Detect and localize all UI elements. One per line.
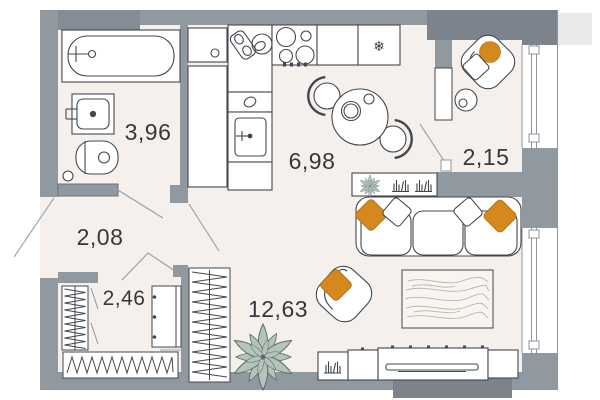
wall-bathroom-bottom [58, 184, 118, 196]
wall-closet-top [58, 272, 98, 283]
wall-balcony-partition [437, 172, 522, 197]
dining-table-icon [332, 89, 388, 145]
sofa-icon [354, 197, 521, 256]
room-label-kitchen: 6,98 [289, 148, 336, 174]
floor-drain-icon [63, 171, 73, 181]
side-table-icon [455, 89, 477, 111]
rug-icon [402, 270, 493, 328]
floor-plan-canvas: ❄ [0, 0, 600, 400]
balcony-door-pivot [441, 160, 451, 171]
wall-top-right-dark [427, 10, 522, 40]
bathtub-icon [62, 30, 180, 82]
wall-left-upper [40, 10, 58, 197]
dresser-icon [152, 286, 181, 347]
toilet-icon [76, 141, 118, 174]
neighbor-structure [558, 13, 592, 45]
wall-bathroom-right [180, 25, 188, 197]
floor-plan: ❄ [0, 0, 600, 400]
wardrobe-icon [189, 268, 230, 382]
room-label-closet: 2,46 [103, 287, 146, 310]
balcony-door-panel [435, 68, 452, 120]
shoe-rack-icon [63, 352, 178, 378]
wall-hallway-stub [170, 185, 188, 203]
wall-balcony-left [435, 40, 452, 68]
room-label-bathroom: 3,96 [125, 119, 172, 145]
fridge-snowflake-icon: ❄ [373, 39, 385, 55]
room-label-hallway: 2,08 [77, 224, 124, 250]
wall-window-pier [522, 148, 558, 228]
room-label-living-room: 12,63 [248, 296, 308, 322]
wall-wardrobe-left [181, 268, 189, 378]
room-label-balcony: 2,15 [463, 144, 510, 170]
shelf-unit [352, 173, 437, 197]
bathroom-sink-icon [66, 94, 114, 134]
closet-rail-icon [62, 286, 88, 350]
storage-cabinet-icon [188, 28, 227, 187]
tv-icon [386, 364, 478, 370]
tv-console-icon [318, 346, 518, 381]
wall-bottom-dark [393, 378, 512, 398]
